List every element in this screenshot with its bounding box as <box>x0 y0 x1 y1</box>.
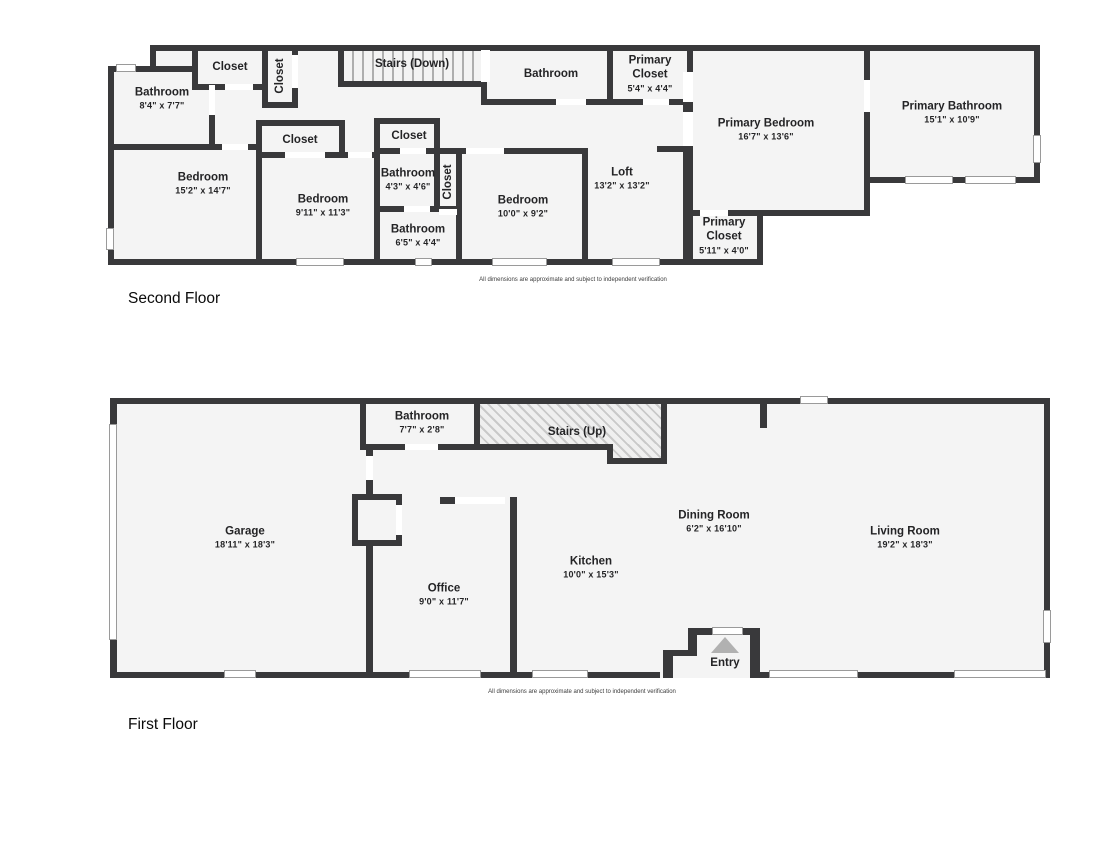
room-dims: 8'4" x 7'7" <box>135 100 189 112</box>
window <box>224 670 256 678</box>
door-opening <box>400 148 426 154</box>
window <box>769 670 858 678</box>
room-name: Primary Closet <box>619 54 681 83</box>
room-label-loft: Loft 13'2" x 13'2" <box>594 166 649 193</box>
room-label-primary-bedroom: Primary Bedroom 16'7" x 13'6" <box>718 117 815 144</box>
room-name: Closet <box>273 58 287 93</box>
window <box>954 670 1046 678</box>
room-dims: 15'1" x 10'9" <box>902 114 1002 126</box>
disclaimer-text: All dimensions are approximate and subje… <box>479 277 667 283</box>
room-dims: 10'0" x 15'3" <box>563 569 618 581</box>
room-name: Primary Bedroom <box>718 117 815 131</box>
window <box>492 258 547 266</box>
room-label-dining-room: Dining Room 6'2" x 16'10" <box>678 509 750 536</box>
room-name: Bathroom <box>395 410 449 424</box>
room-name: Bedroom <box>498 194 548 208</box>
floor-title-second: Second Floor <box>128 290 220 308</box>
room-label-living-room: Living Room 19'2" x 18'3" <box>870 525 940 552</box>
door-opening <box>556 99 586 105</box>
window <box>409 670 481 678</box>
door-opening <box>683 72 693 102</box>
room-name: Bedroom <box>296 193 350 207</box>
door-opening <box>225 84 253 90</box>
room-label-entry: Entry <box>710 656 739 670</box>
room-name: Garage <box>215 525 275 539</box>
room-name: Loft <box>594 166 649 180</box>
room-name: Primary Closet <box>693 216 755 245</box>
room-name: Bathroom <box>135 86 189 100</box>
window <box>1033 135 1041 163</box>
wall <box>750 628 760 678</box>
door-opening <box>466 148 504 154</box>
wall <box>864 51 870 177</box>
room-label-primary-closet-b: Primary Closet 5'11" x 4'0" <box>693 216 755 257</box>
room-dims: 7'7" x 2'8" <box>395 424 449 436</box>
room-label-closet-e: Closet <box>441 164 455 199</box>
room-dims: 16'7" x 13'6" <box>718 131 815 143</box>
door-opening <box>455 497 505 504</box>
window <box>106 228 114 250</box>
door-opening <box>396 505 402 535</box>
window <box>116 64 136 72</box>
window <box>800 396 828 404</box>
room-name: Office <box>419 582 469 596</box>
window <box>296 258 344 266</box>
floor-title-first: First Floor <box>128 716 198 734</box>
room-name: Dining Room <box>678 509 750 523</box>
disclaimer-text: All dimensions are approximate and subje… <box>488 689 676 695</box>
room-label-office: Office 9'0" x 11'7" <box>419 582 469 609</box>
room-dims: 9'0" x 11'7" <box>419 596 469 608</box>
room-label-bathroom-a: Bathroom 8'4" x 7'7" <box>135 86 189 113</box>
room-name: Kitchen <box>563 555 618 569</box>
room-dims: 6'2" x 16'10" <box>678 523 750 535</box>
room-label-bedroom-a: Bedroom 15'2" x 14'7" <box>175 171 230 198</box>
window <box>532 670 588 678</box>
door-opening <box>481 50 490 82</box>
room-label-bedroom-c: Bedroom 10'0" x 9'2" <box>498 194 548 221</box>
door-opening <box>683 112 693 146</box>
room-dims: 15'2" x 14'7" <box>175 185 230 197</box>
room-label-bathroom: Bathroom 7'7" x 2'8" <box>395 410 449 437</box>
wall <box>760 398 767 428</box>
door-opening <box>348 152 372 158</box>
door-opening <box>292 55 298 88</box>
room-label-bathroom-b: Bathroom <box>524 67 578 81</box>
room-dims: 13'2" x 13'2" <box>594 180 649 192</box>
room-label-kitchen: Kitchen 10'0" x 15'3" <box>563 555 618 582</box>
wall <box>440 497 455 504</box>
second-floor-plan: Bathroom 8'4" x 7'7" Closet Closet Stair… <box>0 0 1100 340</box>
room-name: Closet <box>391 129 426 143</box>
room-label-closet-c: Closet <box>282 133 317 147</box>
room-label-primary-bathroom: Primary Bathroom 15'1" x 10'9" <box>902 100 1002 127</box>
room-name: Closet <box>212 60 247 74</box>
room-name: Bedroom <box>175 171 230 185</box>
window <box>965 176 1016 184</box>
window <box>905 176 953 184</box>
room-name: Living Room <box>870 525 940 539</box>
room-name: Bathroom <box>391 223 445 237</box>
room-name: Bathroom <box>524 67 578 81</box>
window <box>1043 610 1051 643</box>
door-opening <box>366 456 373 480</box>
storage-closet <box>352 494 402 546</box>
room-label-bathroom-d: Bathroom 6'5" x 4'4" <box>391 223 445 250</box>
floor-area <box>108 140 268 265</box>
room-dims: 9'11" x 11'3" <box>296 207 350 219</box>
window <box>612 258 660 266</box>
room-label-closet-d: Closet <box>391 129 426 143</box>
room-dims: 6'5" x 4'4" <box>391 237 445 249</box>
room-label-garage: Garage 18'11" x 18'3" <box>215 525 275 552</box>
room-dims: 19'2" x 18'3" <box>870 539 940 551</box>
room-name: Closet <box>441 164 455 199</box>
door-opening <box>864 80 870 112</box>
room-name: Primary Bathroom <box>902 100 1002 114</box>
room-dims: 18'11" x 18'3" <box>215 539 275 551</box>
window <box>415 258 432 266</box>
door-opening <box>404 206 430 212</box>
room-dims: 4'3" x 4'6" <box>381 181 435 193</box>
room-label-bedroom-b: Bedroom 9'11" x 11'3" <box>296 193 350 220</box>
room-label-stairs-down: Stairs (Down) <box>375 57 449 71</box>
door-opening <box>209 85 215 115</box>
window <box>109 424 117 640</box>
wall <box>657 146 693 152</box>
room-dims: 5'4" x 4'4" <box>619 82 681 94</box>
door-opening <box>285 152 325 158</box>
wall <box>510 497 517 672</box>
window <box>712 627 743 635</box>
room-name: Stairs (Up) <box>548 425 606 439</box>
floorplan-page: { "colors": { "wall": "#39393b", "floor_… <box>0 0 1100 850</box>
room-name: Stairs (Down) <box>375 57 449 71</box>
room-label-closet-a: Closet <box>212 60 247 74</box>
door-opening <box>643 99 669 105</box>
entry-arrow-icon <box>711 637 739 653</box>
stairs-up-landing <box>607 444 667 464</box>
room-name: Closet <box>282 133 317 147</box>
door-opening <box>439 209 457 215</box>
room-label-primary-closet-a: Primary Closet 5'4" x 4'4" <box>619 54 681 95</box>
wall <box>757 210 763 265</box>
door-opening <box>222 144 248 150</box>
room-dims: 10'0" x 9'2" <box>498 208 548 220</box>
room-label-bathroom-c: Bathroom 4'3" x 4'6" <box>381 167 435 194</box>
room-name: Entry <box>710 656 739 670</box>
room-name: Bathroom <box>381 167 435 181</box>
room-dims: 5'11" x 4'0" <box>693 244 755 256</box>
first-floor-plan: Garage 18'11" x 18'3" Bathroom 7'7" x 2'… <box>0 340 1100 750</box>
wall <box>695 628 712 635</box>
door-opening <box>405 444 438 450</box>
room-label-closet-b: Closet <box>273 58 287 93</box>
room-label-stairs-up: Stairs (Up) <box>548 425 606 439</box>
